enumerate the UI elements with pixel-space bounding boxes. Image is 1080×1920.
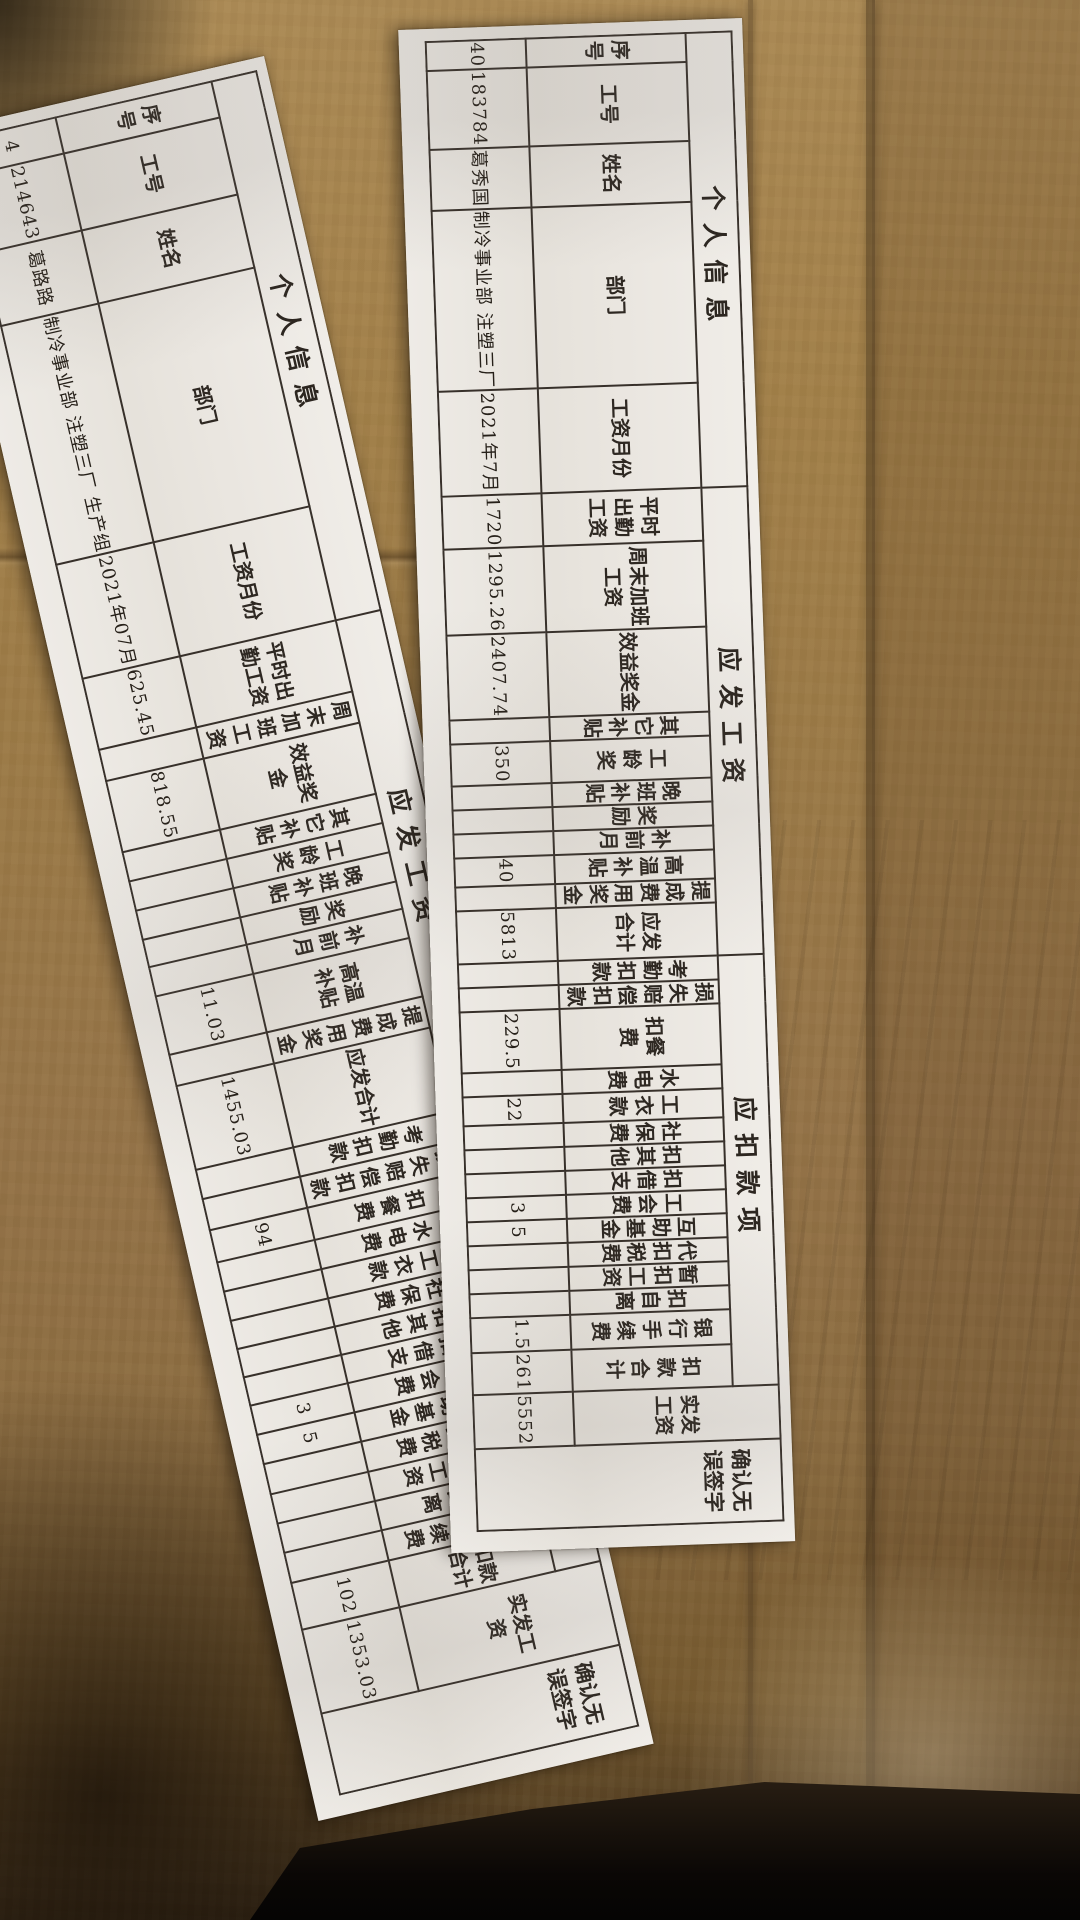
net-pay-label: 实发工资 bbox=[573, 1384, 780, 1445]
column-value: 229.5 bbox=[460, 1009, 562, 1073]
column-label: 工资月份 bbox=[538, 383, 701, 493]
column-value: 5813 bbox=[456, 908, 558, 965]
column-label: 姓名 bbox=[530, 141, 692, 208]
column-value: 2021年7月 bbox=[438, 389, 542, 497]
column-value: 183784 bbox=[427, 67, 530, 149]
column-label: 应发合计 bbox=[556, 902, 717, 961]
column-value: 1.5 bbox=[471, 1315, 572, 1354]
column-value: 261 bbox=[472, 1350, 573, 1395]
column-label: 扣餐费 bbox=[560, 1004, 722, 1070]
column-value: 1295.26 bbox=[444, 547, 547, 636]
column-value bbox=[454, 831, 555, 858]
column-value bbox=[458, 961, 559, 988]
column-value: 350 bbox=[451, 741, 552, 786]
net-pay-value: 5552 bbox=[473, 1392, 575, 1449]
column-value: 3 bbox=[466, 1195, 567, 1222]
payslip-table: 个人信息应发工资应扣款项实发工资确认无误签字序号工号姓名部门工资月份平时出勤工资… bbox=[425, 30, 784, 1531]
column-value: 40 bbox=[426, 39, 527, 71]
column-label: 工号 bbox=[527, 62, 689, 146]
column-label: 平时出勤工资 bbox=[542, 487, 703, 546]
column-value: 22 bbox=[463, 1094, 564, 1126]
column-value bbox=[465, 1147, 566, 1174]
payslip-right: 个人信息应发工资应扣款项实发工资确认无误签字序号工号姓名部门工资月份平时出勤工资… bbox=[399, 18, 796, 1553]
column-label: 部门 bbox=[532, 202, 698, 389]
column-value: 2407.74 bbox=[447, 632, 550, 721]
column-value bbox=[453, 807, 554, 834]
column-value bbox=[456, 884, 557, 911]
column-value bbox=[452, 783, 553, 810]
column-value bbox=[468, 1243, 569, 1270]
column-label: 效益奖金 bbox=[547, 626, 709, 717]
column-label: 扣款合计 bbox=[572, 1345, 733, 1392]
column-label: 银行手续费 bbox=[571, 1309, 732, 1350]
column-value: 1720 bbox=[442, 493, 544, 550]
signature-cell: 确认无误签字 bbox=[475, 1438, 783, 1531]
column-value bbox=[464, 1123, 565, 1150]
column-value: 制冷事业部 注塑三厂 bbox=[432, 207, 538, 392]
column-value bbox=[450, 717, 551, 744]
signature-label: 确认无误签字 bbox=[697, 1448, 756, 1518]
column-value bbox=[469, 1267, 570, 1294]
column-value bbox=[470, 1291, 571, 1318]
column-value: 葛秀国 bbox=[430, 146, 532, 210]
column-value bbox=[462, 1070, 563, 1097]
column-value bbox=[466, 1171, 567, 1198]
column-value: 5 bbox=[467, 1219, 568, 1246]
column-label: 周末加班工资 bbox=[544, 541, 706, 632]
column-value bbox=[459, 985, 560, 1012]
photo-scene: 个人信息应发工资应扣款项实发工资确认无误签字序号工号姓名部门工资月份平时出勤工资… bbox=[0, 0, 1080, 1920]
column-value: 40 bbox=[455, 855, 556, 887]
column-label: 工龄奖 bbox=[551, 736, 712, 783]
signature-label: 确认无误签字 bbox=[540, 1659, 611, 1738]
